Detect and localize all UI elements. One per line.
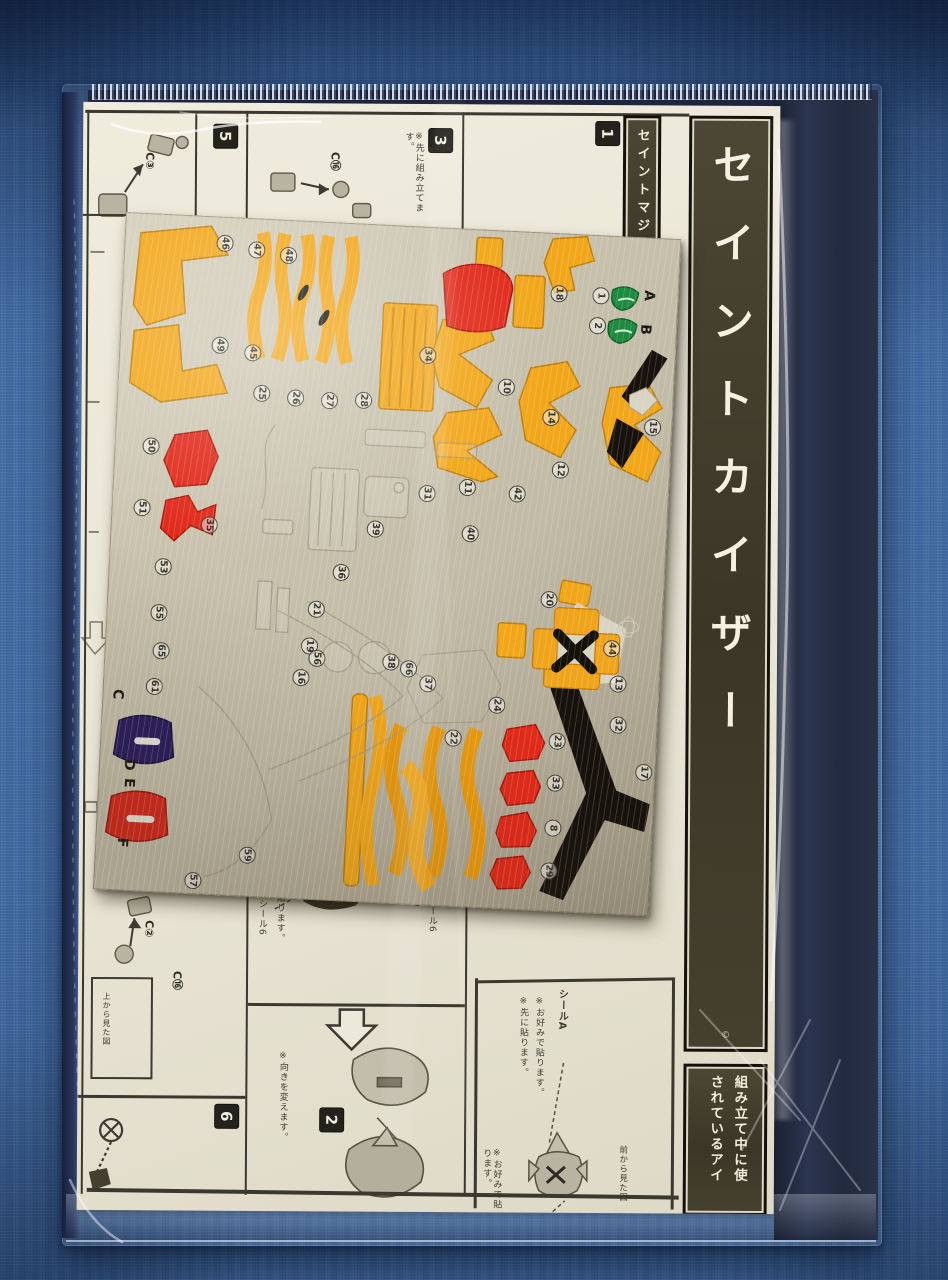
part-sketch [333, 181, 349, 197]
leader-line [516, 1201, 564, 1215]
note-seal6-right: シール6 [426, 896, 437, 966]
part-label-c2: C② [142, 920, 155, 937]
note-turn: ※向きを変えます。 [277, 1051, 288, 1191]
leader-line [97, 1142, 111, 1172]
face-crest [547, 1133, 569, 1153]
part-label-c16-top: C⑯ [328, 152, 344, 171]
part-sketch [115, 945, 133, 963]
arrow-head [133, 164, 143, 176]
note-front-view: 前から見た図 [617, 1145, 627, 1211]
sticker-sheet-sheen [93, 212, 681, 916]
part-label-c3: C③ [143, 152, 156, 169]
part-sketch [127, 896, 152, 916]
items-banner-text: 組み立て中に使 されているアイ [701, 1075, 750, 1211]
hollow-arrow-down [328, 1009, 376, 1049]
bag-dark-backing-right [774, 90, 878, 1240]
arrow-head [128, 918, 141, 928]
step-6-box: 6 [215, 1105, 238, 1128]
part-sketch-dark [89, 1168, 111, 1190]
arrow-head [319, 183, 329, 195]
title-banner: セイントカイザー © [684, 116, 774, 1052]
note-paste: 貼ります。 [274, 893, 285, 963]
step-2-box: 2 [320, 1108, 343, 1131]
copyright-mark: © [689, 1031, 763, 1041]
note-seal6-left: シール6 [256, 899, 267, 969]
margin-marks [85, 802, 97, 812]
note-seal-a: シールA [556, 989, 568, 1059]
robot-visor [377, 1078, 401, 1087]
step-5-box: 5 [214, 125, 237, 148]
part-label-c16-bottom: C⑯ [170, 971, 186, 990]
sticker-sheet: ABCDEF 464748494525262728181210141215355… [93, 212, 681, 916]
note-pre-assemble: ※先に組み立てます。 [403, 132, 424, 228]
part-sketch [99, 194, 127, 216]
leader-line [549, 1063, 564, 1145]
note-top-view: 上から見た図 [101, 992, 111, 1076]
step-1-box: 1 [596, 122, 619, 145]
note-optional-a: ※お好みで貼ります。 [533, 997, 544, 1117]
photo-of-model-kit-bag: 5 3 1 2 6 C③ C⑯ C② C⑯ ※先に組み立てます。 シール6 貼り… [0, 0, 948, 1280]
panel-divider [83, 214, 131, 216]
margin-marks [87, 252, 105, 532]
part-sketch [271, 173, 295, 191]
items-banner: 組み立て中に使 されているアイ [683, 1064, 768, 1215]
note-first-a: ※先に貼ります。 [517, 997, 528, 1107]
part-sketch [353, 204, 371, 218]
robot-head-sketch [352, 1048, 428, 1105]
title-banner-text: セイントカイザー [695, 143, 762, 1047]
part-sketch [176, 136, 188, 148]
items-banner-line2: されているアイ [705, 1075, 726, 1211]
bag-serrated-edge [92, 84, 872, 100]
note-optional-b: ※お好みで貼ります。 [481, 1148, 502, 1212]
items-banner-line1: 組み立て中に使 [729, 1075, 750, 1211]
step-3-box: 3 [429, 129, 452, 152]
